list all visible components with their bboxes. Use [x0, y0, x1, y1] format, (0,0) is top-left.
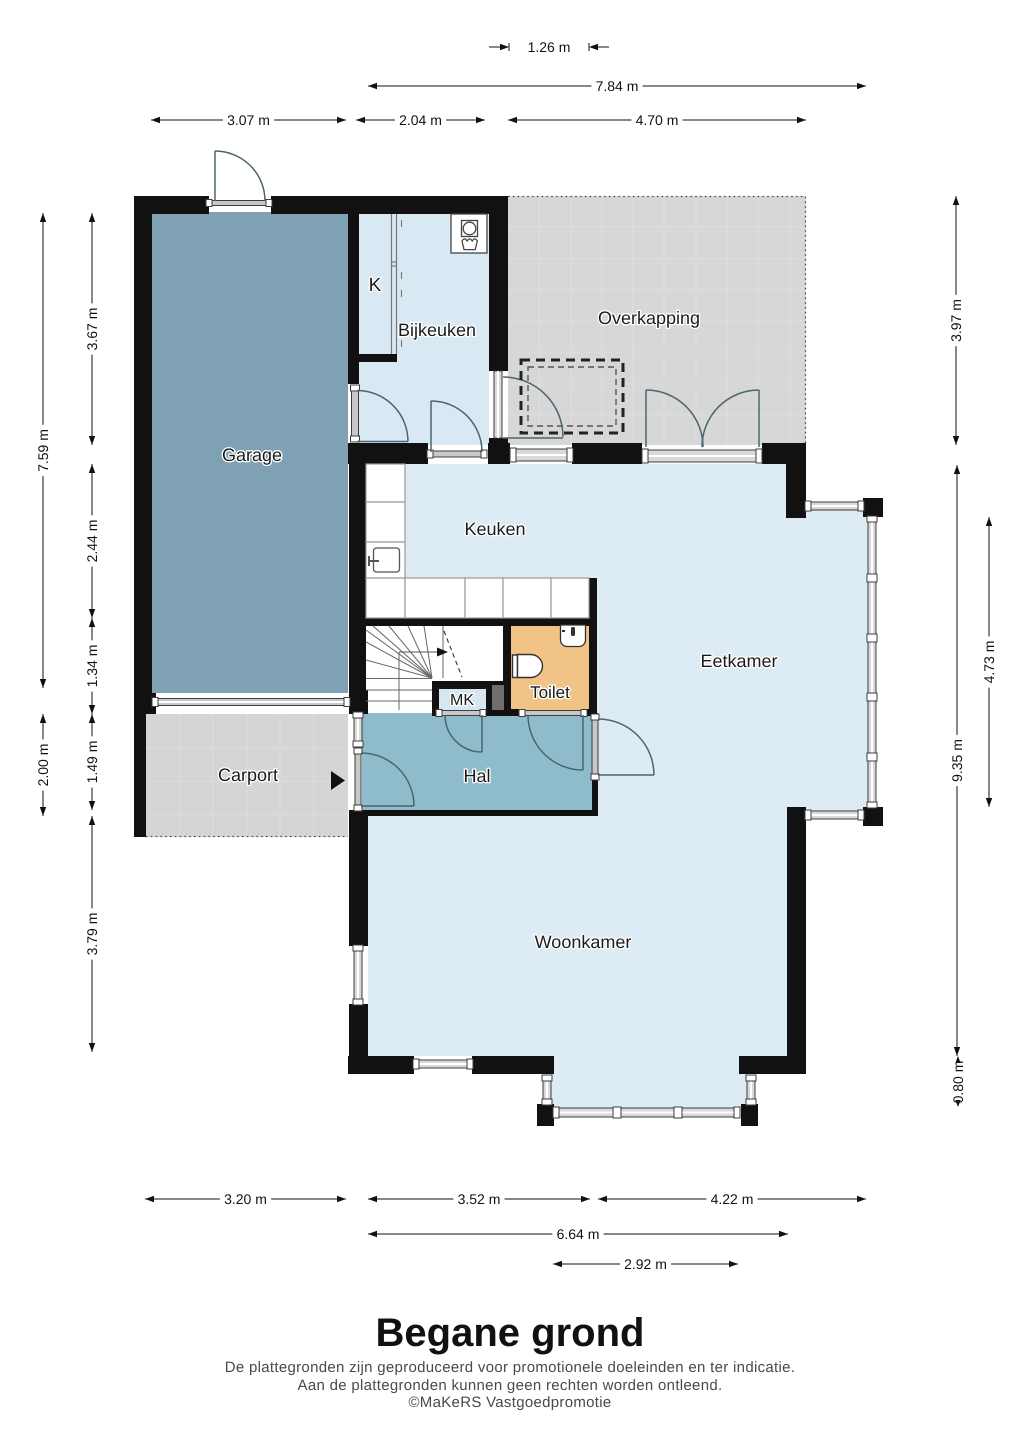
svg-text:K: K — [369, 275, 382, 296]
svg-text:3.52 m: 3.52 m — [458, 1191, 501, 1207]
svg-text:©MaKeRS Vastgoedpromotie: ©MaKeRS Vastgoedpromotie — [408, 1394, 611, 1411]
svg-text:7.59 m: 7.59 m — [35, 429, 51, 472]
svg-text:6.64 m: 6.64 m — [557, 1226, 600, 1242]
svg-text:Eetkamer: Eetkamer — [700, 651, 777, 671]
svg-text:9.35 m: 9.35 m — [949, 739, 965, 782]
svg-text:2.04 m: 2.04 m — [399, 112, 442, 128]
svg-text:De plattegronden zijn geproduc: De plattegronden zijn geproduceerd voor … — [225, 1359, 796, 1376]
svg-text:3.67 m: 3.67 m — [84, 308, 100, 351]
svg-text:MK: MK — [450, 692, 474, 709]
svg-text:Keuken: Keuken — [464, 519, 525, 539]
svg-text:1.49 m: 1.49 m — [84, 741, 100, 784]
svg-text:Garage: Garage — [222, 445, 282, 465]
svg-text:1.34 m: 1.34 m — [84, 645, 100, 688]
svg-text:1.26 m: 1.26 m — [528, 39, 571, 55]
svg-text:0.80 m: 0.80 m — [950, 1061, 966, 1104]
svg-text:4.73 m: 4.73 m — [981, 641, 997, 684]
svg-text:Bijkeuken: Bijkeuken — [398, 320, 476, 340]
svg-text:2.92 m: 2.92 m — [624, 1256, 667, 1272]
svg-text:Carport: Carport — [218, 765, 278, 785]
svg-text:4.70 m: 4.70 m — [636, 112, 679, 128]
svg-text:Overkapping: Overkapping — [598, 308, 700, 328]
svg-text:Toilet: Toilet — [530, 683, 570, 702]
svg-text:Aan de plattegronden kunnen ge: Aan de plattegronden kunnen geen rechten… — [298, 1377, 723, 1394]
svg-text:Hal: Hal — [463, 766, 490, 786]
svg-text:3.07 m: 3.07 m — [227, 112, 270, 128]
svg-text:3.20 m: 3.20 m — [224, 1191, 267, 1207]
svg-text:7.84 m: 7.84 m — [596, 78, 639, 94]
svg-text:4.22 m: 4.22 m — [711, 1191, 754, 1207]
svg-text:Begane grond: Begane grond — [376, 1311, 645, 1355]
svg-text:3.79 m: 3.79 m — [84, 913, 100, 956]
svg-text:Woonkamer: Woonkamer — [535, 932, 632, 952]
svg-text:2.00 m: 2.00 m — [35, 744, 51, 787]
svg-text:2.44 m: 2.44 m — [84, 520, 100, 563]
svg-text:3.97 m: 3.97 m — [948, 299, 964, 342]
